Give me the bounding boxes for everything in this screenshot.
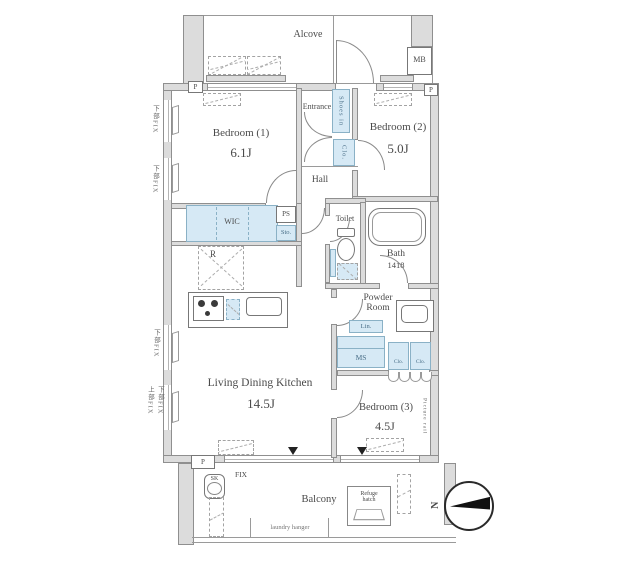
stove-burner-1 <box>198 300 205 307</box>
toilet-storage <box>337 263 358 280</box>
left-wall-window-3 <box>163 325 172 370</box>
washbasin <box>401 305 428 323</box>
stove-burner-3 <box>205 311 210 316</box>
folding-door-2 <box>399 372 410 382</box>
folding-door-4 <box>421 372 432 382</box>
stove-burner-2 <box>211 300 218 307</box>
toilet-tank <box>337 228 355 237</box>
closet-b <box>410 342 431 370</box>
closet-b-label: Clo. <box>410 360 431 366</box>
alcove-wall-left <box>183 15 204 84</box>
wall-powder-top-2 <box>408 283 439 289</box>
balcony-rail-line-2 <box>192 542 456 543</box>
storage-label: Sto. <box>276 230 296 237</box>
toilet-bowl <box>337 238 355 261</box>
stove <box>193 296 224 321</box>
bedroom1-size: 6.1J <box>222 146 260 160</box>
wall-note-3: 下部FIX <box>152 318 159 368</box>
meter-space <box>337 336 385 368</box>
bedroom3-size: 4.5J <box>364 420 406 433</box>
meter-space-label: MS <box>337 354 385 362</box>
laundry-post-2 <box>328 518 329 537</box>
shoe-closet-door-arc-2 <box>304 137 332 162</box>
trunk-storage-hatch-1 <box>208 56 246 75</box>
balcony-partition-hatch-left <box>209 497 224 537</box>
shoe-closet-door-arc-1 <box>304 112 332 137</box>
floor-plan: Alcove MB 下部FIX 下部FIX 下部FIX 上部FIX 下部FIX … <box>0 0 640 569</box>
outer-wall-right <box>430 83 439 463</box>
entrance-step-line <box>302 166 358 167</box>
slop-sink-label: SK <box>204 476 225 482</box>
balcony-rail-line-1 <box>192 537 456 538</box>
meter-box-label: MB <box>408 56 431 64</box>
bedroom3-balcony-window <box>341 455 419 463</box>
outer-wall-top-3 <box>376 83 384 91</box>
fix-window-label: FIX <box>229 471 253 479</box>
pipe-box-top-right-label: P <box>424 87 438 94</box>
powder-room-line1: Powder <box>363 293 392 303</box>
window-sill-bar-1 <box>206 75 286 82</box>
refuge-hatch-line2: hatch <box>363 497 376 503</box>
closet-a-label: Clo. <box>388 360 409 366</box>
linen-closet-label: Lin. <box>349 324 383 331</box>
laundry-post-1 <box>250 518 251 537</box>
kitchen-sink <box>246 297 282 316</box>
entrance-door-leaf <box>336 40 337 83</box>
hall-label: Hall <box>304 176 336 186</box>
closet-a <box>388 342 409 370</box>
outer-wall-bottom-3 <box>419 455 439 463</box>
toilet-counter <box>330 249 336 277</box>
alcove-wall-right <box>411 15 433 47</box>
window-sill-bar-2 <box>380 75 414 82</box>
wall-bedroom2-left-upper <box>352 88 358 140</box>
wall-note-5: 下部FIX <box>156 372 163 428</box>
balcony-wall-left <box>178 463 194 545</box>
balcony-label: Balcony <box>292 494 346 505</box>
ldk-hatch-box <box>218 440 254 455</box>
powder-room-line2: Room <box>366 303 389 313</box>
wall-ldk-divider-3 <box>331 418 337 458</box>
picture-rail-label: Picture rail <box>421 394 427 438</box>
refuge-hatch-label: Refuge hatch <box>347 491 391 504</box>
left-wall-window-4 <box>163 385 172 430</box>
slop-sink-basin <box>207 482 222 495</box>
refrigerator-label: R <box>206 250 220 259</box>
bedroom2-upper-cabinet-hatch <box>374 93 412 106</box>
wic-label: WIC <box>216 218 248 226</box>
refuge-hatch-line1: Refuge <box>360 491 377 497</box>
folding-door-3 <box>410 372 421 382</box>
dishwasher <box>226 299 240 320</box>
ldk-name: Living Dining Kitchen <box>200 377 320 389</box>
alcove-label: Alcove <box>284 30 332 41</box>
bedroom3-hatch-box <box>366 438 404 452</box>
casement-mark-2 <box>172 163 179 193</box>
bathtub-inner <box>372 212 422 242</box>
wall-note-2: 下部FIX <box>151 152 158 206</box>
entrance-label: Entrance <box>298 103 336 111</box>
casement-mark-3 <box>172 331 179 363</box>
balcony-partition-hatch-right <box>397 474 411 514</box>
left-wall-window-2 <box>163 158 172 200</box>
casement-mark-1 <box>172 105 179 135</box>
shoe-closet-label: Shoes in <box>337 92 344 130</box>
pipe-box-balcony-label: P <box>191 459 215 466</box>
bedroom1-upper-cabinet-hatch <box>203 93 241 106</box>
refuge-hatch-glyph <box>353 509 385 520</box>
ldk-balcony-window <box>225 455 333 463</box>
wic-rod-dash-2 <box>248 207 249 240</box>
laundry-hanger-label: laundry hanger <box>258 525 322 532</box>
bedroom1-name: Bedroom (1) <box>205 128 277 140</box>
wall-note-1: 下部FIX <box>151 92 158 146</box>
alcove-divider-line <box>333 15 334 83</box>
compass-north-label: N <box>431 499 442 511</box>
ldk-size: 14.5J <box>238 397 284 411</box>
pipe-box-top-left-label: P <box>188 84 203 91</box>
bedroom3-name: Bedroom (3) <box>350 402 422 413</box>
entrance-closet-label: Clo. <box>340 142 347 164</box>
wall-note-4: 上部FIX <box>146 372 153 428</box>
outer-wall-top-2 <box>296 83 336 91</box>
casement-mark-4 <box>172 391 179 423</box>
pipe-space-label: PS <box>276 211 296 218</box>
meter-space-divider <box>338 348 384 349</box>
wall-ldk-divider-1 <box>331 289 337 298</box>
wall-bedroom3-top-1 <box>337 370 389 376</box>
hall-door-arc <box>302 208 325 234</box>
bedroom2-name: Bedroom (2) <box>365 122 431 134</box>
trunk-storage-hatch-2 <box>247 56 281 75</box>
refrigerator-space <box>198 246 244 290</box>
left-wall-window-1 <box>163 100 172 142</box>
bedroom2-window-top <box>384 83 412 91</box>
window-center-mark-1 <box>288 447 298 455</box>
bedroom1-window-top <box>208 83 296 91</box>
bedroom1-door-arc <box>266 170 296 203</box>
bedroom2-size: 5.0J <box>380 142 416 156</box>
folding-door-1 <box>388 372 399 382</box>
